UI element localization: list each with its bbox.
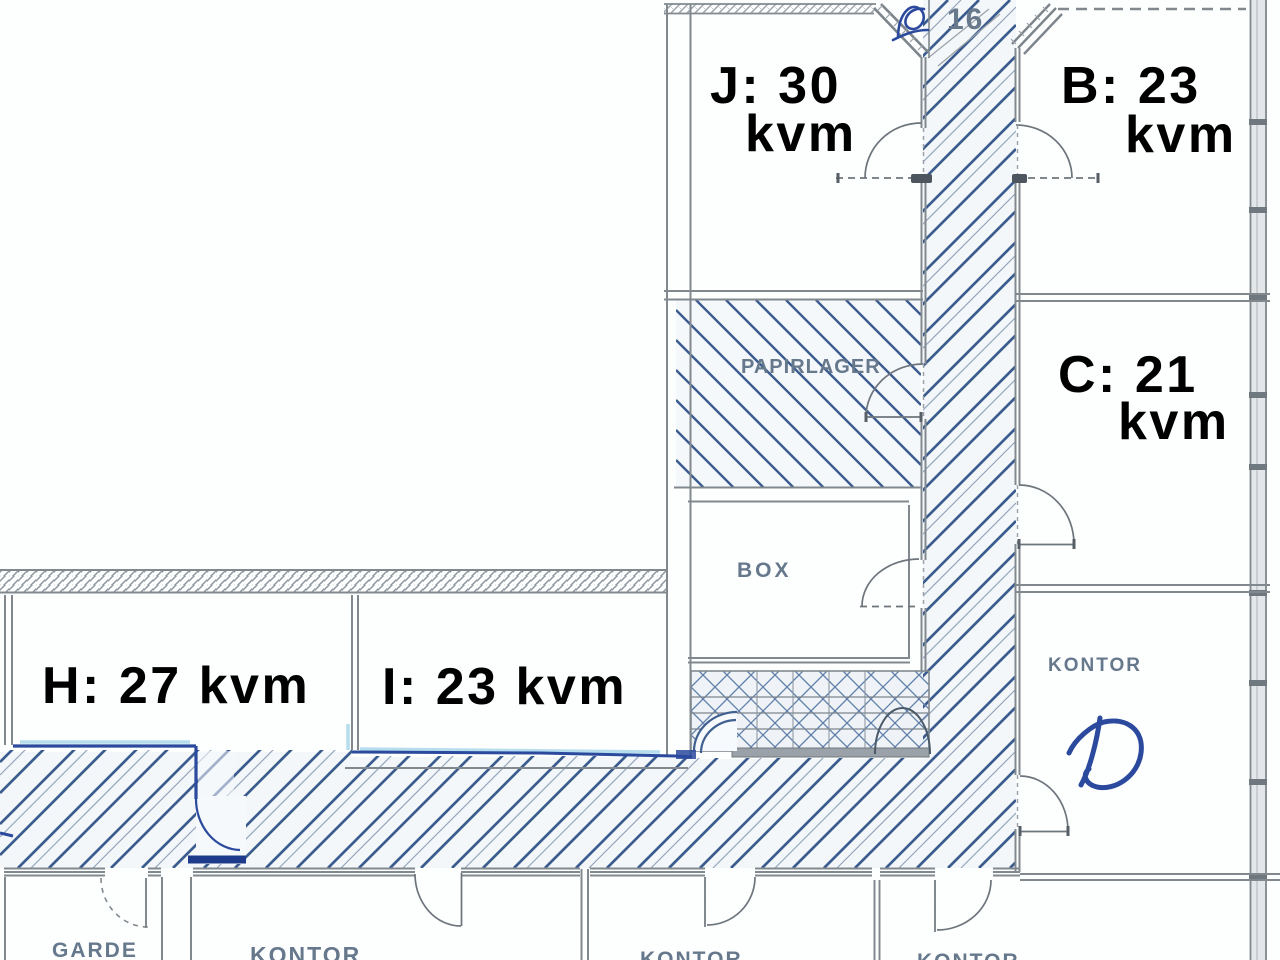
svg-text:PAPIRLAGER: PAPIRLAGER [741,356,881,378]
svg-text:GARDE: GARDE [52,939,138,960]
svg-text:kvm: kvm [745,105,857,163]
svg-text:kvm: kvm [1125,106,1237,164]
svg-text:I: 23 kvm: I: 23 kvm [382,658,627,716]
svg-text:kvm: kvm [1118,393,1230,451]
svg-text:H: 27 kvm: H: 27 kvm [42,657,310,715]
svg-text:16: 16 [947,3,984,36]
svg-text:KONTOR: KONTOR [1048,655,1142,676]
svg-text:KONTOR: KONTOR [640,948,743,960]
svg-text:KONTOR: KONTOR [250,942,361,960]
svg-text:KONTOR: KONTOR [917,950,1020,960]
svg-text:BOX: BOX [737,559,792,582]
